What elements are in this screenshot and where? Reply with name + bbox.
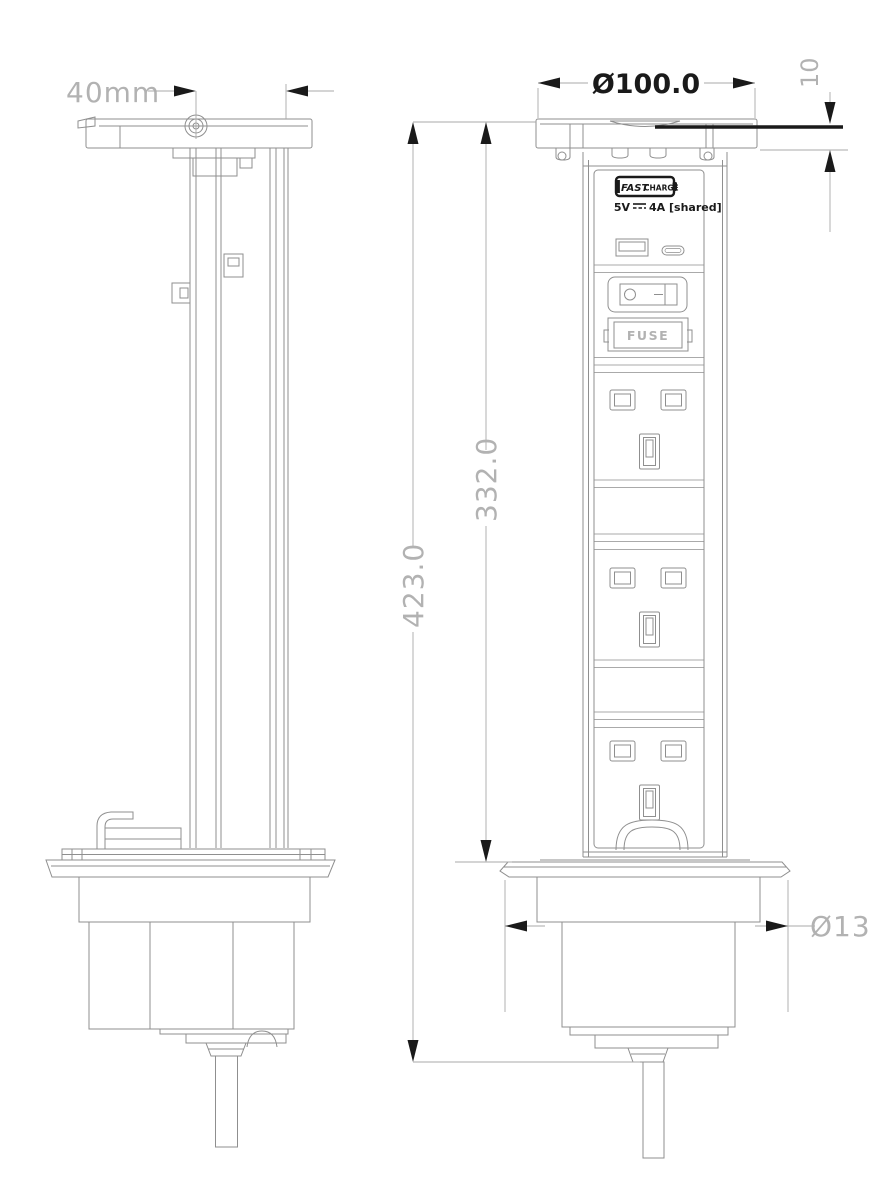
dim-40mm-text: 40mm <box>66 76 160 109</box>
usb-rating: 5V 4A [shared] <box>614 201 722 214</box>
column-clip <box>172 283 190 303</box>
side-base-housing <box>46 812 335 1147</box>
front-cable-gland <box>628 1048 668 1062</box>
dim-height-332: 332.0 <box>455 122 512 862</box>
dim-40mm: 40mm <box>66 76 334 139</box>
fuse-label: FUSE <box>627 328 669 343</box>
uk-socket-2 <box>610 568 686 647</box>
usb-amps-text: 4A [shared] <box>649 201 722 214</box>
dimensions: 40mm Ø100.0 10 423.0 <box>66 57 870 1062</box>
side-power-cable <box>216 1056 238 1147</box>
side-flange <box>46 860 335 877</box>
side-thread-right <box>233 922 294 1029</box>
dim-332-text: 332.0 <box>470 437 503 522</box>
drawing-sheet: FAST CHARGE 5V 4A [shared] <box>0 0 870 1200</box>
dim-130-text: Ø130. <box>810 910 870 943</box>
fast-charge-logo: FAST CHARGE <box>616 177 679 196</box>
side-cap <box>78 115 312 176</box>
power-switch <box>608 277 687 312</box>
side-knurled-collar <box>79 877 310 922</box>
technical-drawing: FAST CHARGE 5V 4A [shared] <box>0 0 870 1200</box>
dim-height-423: 423.0 <box>397 122 640 1062</box>
dim-diameter-100: Ø100.0 <box>538 69 755 118</box>
front-knurled-collar <box>537 877 760 922</box>
dim-thickness-10: 10 <box>760 57 848 232</box>
front-base-housing <box>500 860 790 1158</box>
dim-100-text: Ø100.0 <box>592 69 700 100</box>
logo-charge-text: CHARGE <box>644 184 679 193</box>
usb-c-port <box>662 246 684 255</box>
usb-a-port <box>616 239 648 256</box>
front-cap <box>536 119 843 160</box>
dim-10-text: 10 <box>796 57 824 88</box>
dc-symbol <box>633 204 646 208</box>
front-power-cable <box>643 1062 664 1158</box>
side-dome-detail <box>247 1031 277 1047</box>
usb-volts-text: 5V <box>614 201 631 214</box>
fuse-holder: FUSE <box>604 318 692 351</box>
dim-423-text: 423.0 <box>397 543 430 628</box>
front-threaded-body <box>562 922 735 1027</box>
uk-socket-3 <box>610 741 686 820</box>
lift-columns <box>172 148 288 848</box>
usb-module: FAST CHARGE 5V 4A [shared] <box>614 177 722 256</box>
side-view <box>46 115 335 1147</box>
pull-handle <box>616 820 688 850</box>
column-latch-block <box>224 254 243 277</box>
tower-body: FAST CHARGE 5V 4A [shared] <box>583 152 727 857</box>
uk-socket-1 <box>610 390 686 469</box>
dim-diameter-130: Ø130. <box>505 880 870 1012</box>
front-view: FAST CHARGE 5V 4A [shared] <box>500 119 843 1158</box>
side-thread-left <box>89 922 150 1029</box>
front-flange <box>500 862 790 877</box>
